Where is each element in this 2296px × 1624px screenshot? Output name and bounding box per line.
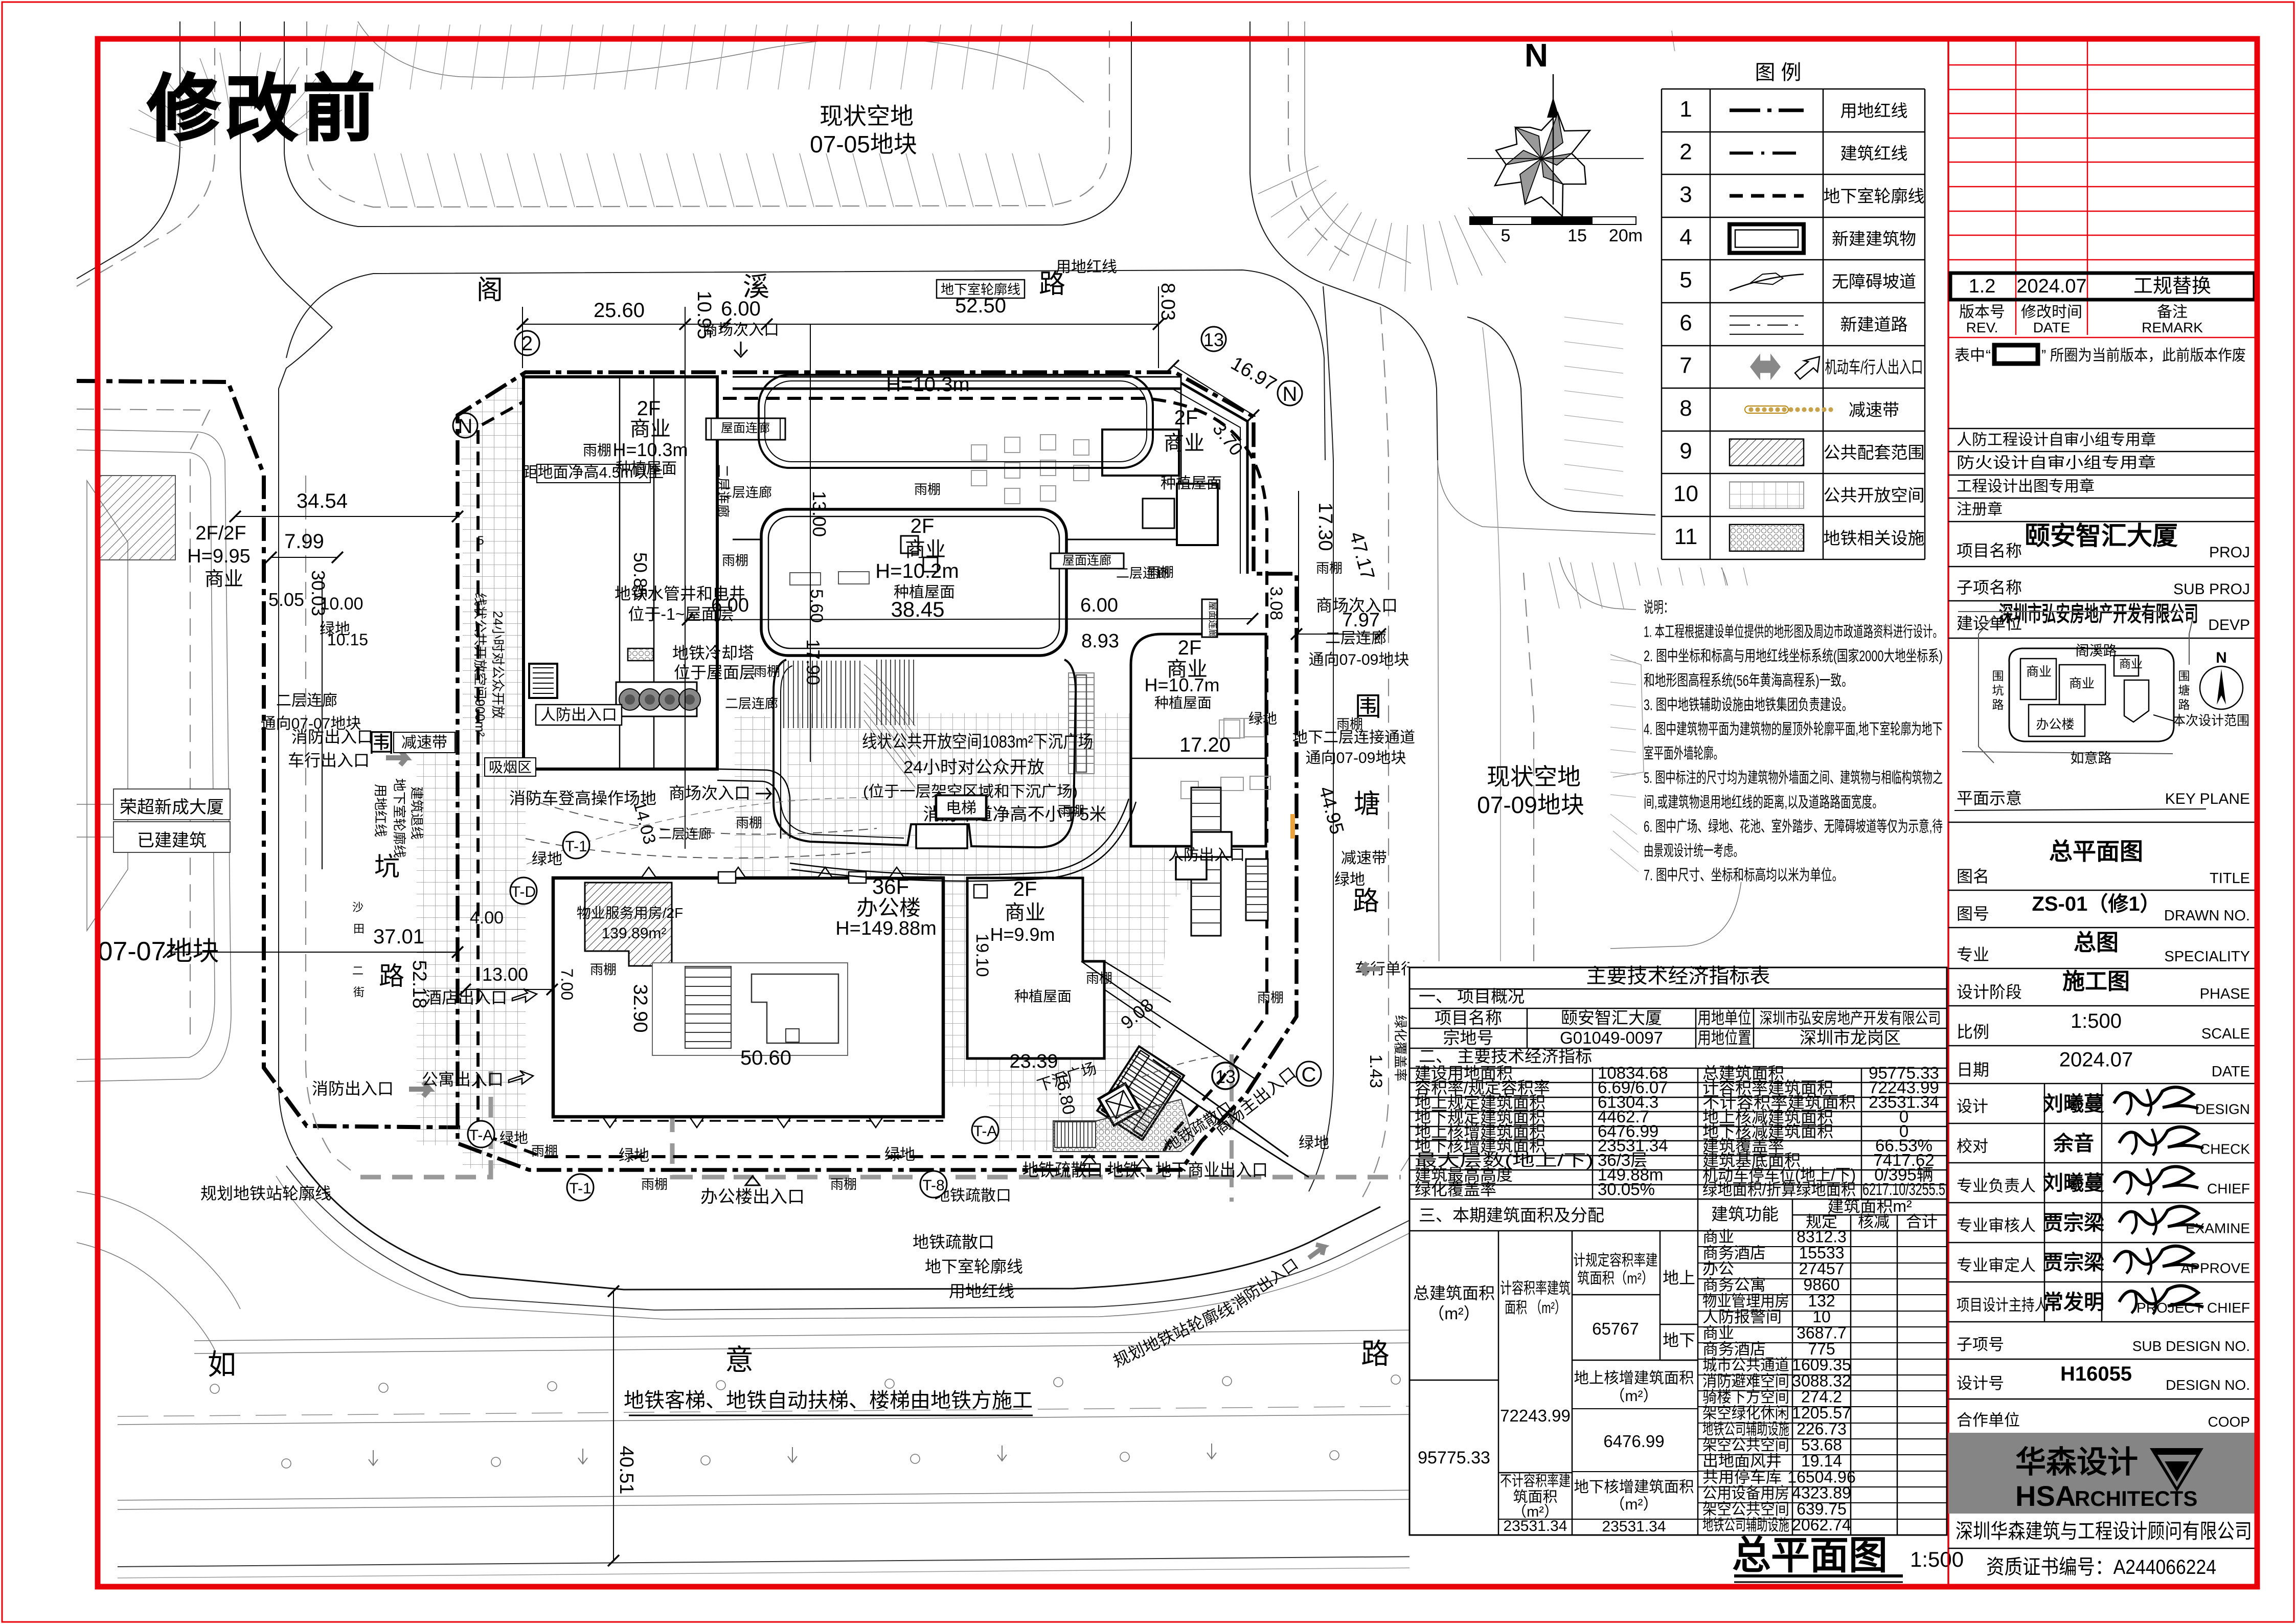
svg-text:T-1: T-1 [569, 1180, 591, 1197]
svg-text:围: 围 [2178, 669, 2190, 683]
svg-text:架空公共空间: 架空公共空间 [1702, 1500, 1789, 1518]
svg-text:32.90: 32.90 [629, 984, 651, 1032]
svg-text:华森设计: 华森设计 [2015, 1445, 2138, 1479]
svg-text:公用设备用房: 公用设备用房 [1702, 1484, 1789, 1502]
svg-text:2: 2 [521, 332, 533, 355]
svg-text:30.05%: 30.05% [1598, 1180, 1655, 1199]
svg-text:7. 图中尺寸、坐标和标高均以米为单位。: 7. 图中尺寸、坐标和标高均以米为单位。 [1644, 867, 1843, 884]
svg-text:用地红线: 用地红线 [373, 784, 388, 837]
svg-text:总建筑面积: 总建筑面积 [1413, 1284, 1495, 1302]
svg-text:二层连廊: 二层连廊 [658, 826, 712, 842]
svg-text:绿地: 绿地 [1334, 871, 1365, 888]
svg-text:图名: 图名 [1957, 867, 1989, 886]
svg-text:RCHITECTS: RCHITECTS [2075, 1486, 2197, 1510]
svg-text:计容积率建筑: 计容积率建筑 [1500, 1279, 1571, 1297]
svg-text:种植屋面: 种植屋面 [1014, 988, 1072, 1004]
svg-text:种植屋面: 种植屋面 [894, 584, 955, 601]
svg-text:说明：: 说明： [1644, 599, 1673, 616]
svg-text:2062.74: 2062.74 [1792, 1516, 1851, 1534]
svg-text:07-07地块: 07-07地块 [98, 937, 219, 966]
svg-text:DESIGN NO.: DESIGN NO. [2166, 1377, 2250, 1393]
svg-text:3: 3 [1679, 182, 1692, 207]
svg-text:（m²）: （m²） [1428, 1304, 1480, 1323]
svg-text:绿地: 绿地 [619, 1147, 649, 1164]
svg-text:地下: 地下 [1663, 1331, 1695, 1349]
svg-text:3. 图中地铁辅助设施由地铁集团负责建设。: 3. 图中地铁辅助设施由地铁集团负责建设。 [1644, 696, 1853, 713]
svg-text:位于-1~屋面层: 位于-1~屋面层 [628, 605, 734, 623]
svg-text:地铁相关设施: 地铁相关设施 [1824, 529, 1925, 548]
svg-text:5.60: 5.60 [807, 589, 826, 623]
svg-text:HSA: HSA [2015, 1480, 2076, 1512]
svg-text:通向07-07地块: 通向07-07地块 [261, 715, 361, 732]
svg-text:深圳市弘安房地产开发有限公司: 深圳市弘安房地产开发有限公司 [1999, 602, 2198, 626]
svg-text:专业负责人: 专业负责人 [1957, 1177, 2036, 1195]
svg-text:二、 主要技术经济指标: 二、 主要技术经济指标 [1419, 1047, 1592, 1066]
svg-text:SUB PROJ: SUB PROJ [2173, 581, 2250, 598]
svg-text:商场次入口: 商场次入口 [669, 784, 751, 802]
svg-text:屋面连廊: 屋面连廊 [1062, 554, 1111, 568]
svg-text:13: 13 [1215, 1066, 1236, 1087]
svg-text:商业: 商业 [2069, 676, 2095, 691]
svg-text:主要技术经济指标表: 主要技术经济指标表 [1586, 965, 1770, 987]
svg-text:总平面图: 总平面图 [1732, 1534, 1888, 1577]
svg-text:如: 如 [208, 1348, 236, 1381]
svg-text:办公: 办公 [1702, 1260, 1734, 1278]
svg-text:N: N [1283, 383, 1298, 405]
svg-text:地下核增建筑面积: 地下核增建筑面积 [1574, 1479, 1694, 1496]
svg-text:1:500: 1:500 [1910, 1547, 1964, 1571]
svg-text:REV.: REV. [1966, 320, 1998, 335]
svg-text:13: 13 [1203, 329, 1224, 350]
svg-text:商业: 商业 [630, 418, 671, 440]
svg-text:5. 图中标注的尺寸均为建筑物外墙面之间、建筑物与相临构筑物: 5. 图中标注的尺寸均为建筑物外墙面之间、建筑物与相临构筑物之 [1644, 770, 1943, 786]
svg-text:07-05地块: 07-05地块 [810, 131, 917, 157]
svg-text:H=10.3m: H=10.3m [886, 373, 969, 396]
svg-text:25.60: 25.60 [594, 299, 645, 322]
svg-text:二层连廊: 二层连廊 [715, 464, 731, 517]
svg-text:人防工程设计自审小组专用章: 人防工程设计自审小组专用章 [1957, 432, 2156, 448]
svg-text:9: 9 [1679, 439, 1692, 464]
svg-text:5: 5 [1679, 267, 1692, 292]
svg-text:新建道路: 新建道路 [1840, 315, 1908, 334]
svg-text:坑: 坑 [1992, 684, 2004, 697]
svg-text:7: 7 [1679, 353, 1692, 378]
svg-text:17.90: 17.90 [803, 639, 824, 685]
svg-text:办公楼: 办公楼 [856, 896, 921, 920]
svg-text:子项名称: 子项名称 [1957, 578, 2022, 597]
svg-text:CHECK: CHECK [2200, 1141, 2250, 1157]
svg-text:室平面外墙轮廓。: 室平面外墙轮廓。 [1644, 746, 1723, 762]
svg-text:11: 11 [1674, 524, 1698, 549]
svg-text:路: 路 [1353, 887, 1379, 916]
svg-text:雨棚: 雨棚 [590, 962, 617, 977]
svg-text:商业: 商业 [1702, 1324, 1734, 1342]
svg-text:建筑功能: 建筑功能 [1711, 1205, 1779, 1224]
svg-text:PROJ: PROJ [2209, 544, 2250, 561]
svg-text:用地红线: 用地红线 [949, 1282, 1014, 1300]
svg-text:雨棚: 雨棚 [1336, 716, 1363, 732]
svg-text:二: 二 [352, 964, 363, 977]
svg-text:SCALE: SCALE [2201, 1026, 2250, 1042]
svg-text:H=10.3m: H=10.3m [612, 439, 688, 460]
svg-text:意: 意 [725, 1344, 754, 1376]
svg-text:和地形图高程系统(56年黄海高程系)一致。: 和地形图高程系统(56年黄海高程系)一致。 [1644, 672, 1853, 689]
svg-text:8: 8 [1679, 396, 1692, 421]
svg-text:通向07-09地块: 通向07-09地块 [1306, 750, 1406, 766]
svg-text:专业: 专业 [1957, 945, 1989, 964]
svg-text:23531.34: 23531.34 [1503, 1518, 1567, 1535]
svg-text:距地面净高4.5m以上: 距地面净高4.5m以上 [522, 464, 664, 481]
svg-text:现状空地: 现状空地 [820, 103, 914, 129]
svg-text:N: N [1525, 37, 1548, 74]
svg-text:平面示意: 平面示意 [1957, 789, 2022, 807]
svg-text:溪: 溪 [743, 273, 769, 302]
svg-text:修改前: 修改前 [147, 69, 380, 150]
svg-text:1.43: 1.43 [1366, 1054, 1385, 1088]
svg-text:13.00: 13.00 [809, 491, 830, 537]
svg-text:公寓出入口: 公寓出入口 [422, 1070, 504, 1089]
svg-text:消防避难空间: 消防避难空间 [1702, 1372, 1789, 1390]
svg-text:合计: 合计 [1906, 1213, 1938, 1231]
svg-text:贾宗梁: 贾宗梁 [2043, 1211, 2104, 1234]
svg-text:雨棚: 雨棚 [1257, 990, 1284, 1005]
svg-text:72243.99: 72243.99 [1500, 1406, 1571, 1425]
svg-text:现状空地: 现状空地 [1487, 763, 1581, 790]
svg-text:物业管理用房: 物业管理用房 [1702, 1292, 1789, 1310]
svg-text:地铁疏散口 地铁、地下商业出入口: 地铁疏散口 地铁、地下商业出入口 [1022, 1161, 1268, 1180]
svg-text:路: 路 [379, 962, 404, 990]
svg-text:10.00: 10.00 [320, 594, 363, 614]
svg-text:DRAWN NO.: DRAWN NO. [2164, 908, 2250, 924]
svg-text:地下室轮廓线: 地下室轮廓线 [941, 282, 1020, 297]
svg-text:DESIGN: DESIGN [2195, 1101, 2250, 1117]
svg-text:地铁公司辅助设施: 地铁公司辅助设施 [1702, 1420, 1789, 1438]
svg-text:H=149.88m: H=149.88m [835, 918, 937, 939]
svg-text:地铁客梯、地铁自动扶梯、楼梯由地铁方施工: 地铁客梯、地铁自动扶梯、楼梯由地铁方施工 [624, 1389, 1033, 1412]
svg-text:电梯: 电梯 [946, 800, 976, 817]
svg-text:34.54: 34.54 [297, 490, 348, 512]
svg-text:CHIEF: CHIEF [2207, 1181, 2250, 1197]
svg-text:13.00: 13.00 [482, 964, 528, 985]
svg-text:用地红线: 用地红线 [1840, 101, 1908, 120]
svg-text:刘曦蔓: 刘曦蔓 [2043, 1093, 2104, 1115]
svg-text:商业: 商业 [2026, 665, 2052, 679]
svg-text:图 例: 图 例 [1755, 61, 1801, 84]
svg-text:围: 围 [1992, 669, 2004, 683]
svg-text:办公楼: 办公楼 [2036, 717, 2074, 732]
svg-text:新建建筑物: 新建建筑物 [1832, 230, 1916, 249]
svg-text:KEY PLANE: KEY PLANE [2165, 791, 2250, 807]
svg-text:50.60: 50.60 [740, 1047, 791, 1069]
svg-text:阁: 阁 [476, 276, 503, 305]
svg-text:雨棚: 雨棚 [531, 1143, 558, 1159]
svg-text:商业: 商业 [2119, 657, 2143, 670]
svg-text:地下室轮廓线: 地下室轮廓线 [925, 1257, 1023, 1276]
svg-text:种植屋面: 种植屋面 [1161, 475, 1222, 492]
svg-text:比例: 比例 [1957, 1023, 1989, 1041]
svg-text:2: 2 [1679, 139, 1692, 164]
svg-text:减速带: 减速带 [1849, 400, 1899, 419]
svg-text:图号: 图号 [1957, 905, 1989, 923]
svg-text:通向07-09地块: 通向07-09地块 [1309, 651, 1410, 668]
svg-text:路: 路 [2178, 698, 2190, 711]
svg-text:雨棚: 雨棚 [914, 482, 941, 497]
svg-text:田: 田 [353, 922, 365, 935]
svg-text:位于屋面层: 位于屋面层 [674, 663, 756, 682]
svg-text:雨棚: 雨棚 [830, 1177, 857, 1192]
svg-text:阁溪路: 阁溪路 [2076, 643, 2117, 659]
svg-text:REMARK: REMARK [2142, 320, 2203, 335]
svg-text:酒店出入口: 酒店出入口 [425, 988, 507, 1007]
svg-text:雨棚: 雨棚 [754, 664, 780, 679]
svg-text:项目名称: 项目名称 [1957, 542, 2022, 560]
svg-text:地铁冷却塔: 地铁冷却塔 [672, 644, 754, 662]
svg-text:T-A: T-A [469, 1127, 493, 1144]
svg-text:T-D: T-D [511, 884, 536, 900]
svg-text:2F: 2F [911, 515, 935, 537]
svg-text:H=10.2m: H=10.2m [875, 560, 959, 582]
svg-text:ZS-01（修1）: ZS-01（修1） [2032, 893, 2160, 915]
svg-text:雨棚: 雨棚 [722, 553, 748, 568]
svg-text:6: 6 [1679, 310, 1692, 335]
svg-text:宗地号: 宗地号 [1443, 1028, 1494, 1047]
svg-text:用地红线: 用地红线 [1056, 259, 1117, 276]
svg-text:施工图: 施工图 [2062, 969, 2130, 994]
svg-text:7.00: 7.00 [558, 968, 576, 1000]
svg-text:子项号: 子项号 [1957, 1336, 2004, 1354]
svg-text:N: N [2216, 649, 2227, 666]
svg-text:建筑红线: 建筑红线 [1840, 144, 1908, 163]
svg-text:商务酒店: 商务酒店 [1702, 1340, 1766, 1358]
svg-text:G01049-0097: G01049-0097 [1560, 1028, 1663, 1047]
svg-text:3.08: 3.08 [1266, 587, 1286, 620]
svg-text:二层连廊: 二层连廊 [276, 692, 337, 709]
svg-text:雨棚: 雨棚 [583, 442, 611, 458]
svg-text:深圳市龙岗区: 深圳市龙岗区 [1800, 1028, 1901, 1047]
svg-text:绿地: 绿地 [884, 1146, 915, 1163]
svg-text:17.30: 17.30 [1314, 502, 1336, 551]
svg-text:H=9.9m: H=9.9m [990, 924, 1055, 945]
svg-text:（m²）: （m²） [1610, 1496, 1658, 1513]
svg-text:减速带: 减速带 [401, 734, 447, 751]
svg-text:三、本期建筑面积及分配: 三、本期建筑面积及分配 [1419, 1206, 1604, 1225]
svg-text:地上: 地上 [1663, 1269, 1695, 1287]
svg-text:架空公共空间: 架空公共空间 [1702, 1436, 1789, 1454]
svg-text:路: 路 [1361, 1338, 1390, 1370]
svg-text:6476.99: 6476.99 [1603, 1432, 1664, 1451]
svg-text:出地面风井: 出地面风井 [1702, 1452, 1782, 1470]
svg-text:1.2: 1.2 [1969, 276, 1996, 297]
svg-text:项目设计主持人: 项目设计主持人 [1957, 1296, 2048, 1314]
svg-text:核减: 核减 [1858, 1213, 1890, 1231]
svg-text:专业审核人: 专业审核人 [1957, 1217, 2036, 1235]
svg-text:雨棚: 雨棚 [1147, 565, 1174, 580]
svg-text:间,或建筑物退用地红线的距离,以及道路路面宽度。: 间,或建筑物退用地红线的距离,以及道路路面宽度。 [1644, 794, 1883, 811]
svg-text:雨棚: 雨棚 [641, 1177, 668, 1192]
svg-text:T-8: T-8 [922, 1177, 944, 1194]
svg-text:深圳市弘安房地产开发有限公司: 深圳市弘安房地产开发有限公司 [1760, 1009, 1941, 1027]
svg-text:线状公共开放空间1083m²下沉广场: 线状公共开放空间1083m²下沉广场 [862, 732, 1093, 752]
svg-text:地下室轮廓线: 地下室轮廓线 [392, 778, 407, 858]
svg-text:校对: 校对 [1957, 1137, 1988, 1155]
svg-text:不计容积率建: 不计容积率建 [1500, 1473, 1571, 1490]
svg-text:设计: 设计 [1957, 1098, 1988, 1116]
svg-text:2F: 2F [1178, 637, 1202, 659]
svg-text:雨棚: 雨棚 [1058, 803, 1084, 819]
svg-text:23.39: 23.39 [1009, 1051, 1058, 1072]
svg-text:17.20: 17.20 [1179, 734, 1231, 756]
svg-text:绿地: 绿地 [320, 621, 350, 638]
svg-text:地上核增建筑面积: 地上核增建筑面积 [1574, 1370, 1694, 1387]
svg-text:专业审定人: 专业审定人 [1957, 1256, 2036, 1274]
svg-text:工程设计出图专用章: 工程设计出图专用章 [1957, 478, 2095, 495]
svg-text:吸烟区: 吸烟区 [489, 759, 532, 775]
svg-text:刘曦蔓: 刘曦蔓 [2043, 1172, 2104, 1194]
svg-text:6.00: 6.00 [1080, 595, 1118, 616]
svg-text:城市公共通道: 城市公共通道 [1702, 1356, 1789, 1374]
svg-text:8.03: 8.03 [1157, 283, 1178, 321]
svg-text:2F: 2F [1013, 878, 1037, 900]
svg-text:T-1: T-1 [565, 838, 587, 855]
svg-text:2024.07: 2024.07 [2059, 1049, 2133, 1071]
svg-text:塘: 塘 [2178, 684, 2190, 697]
svg-text:37.01: 37.01 [373, 926, 424, 948]
svg-text:139.89m²: 139.89m² [602, 925, 667, 942]
svg-text:商业: 商业 [1702, 1228, 1734, 1246]
svg-text:商业: 商业 [1005, 901, 1045, 924]
svg-text:二层连廊: 二层连廊 [1325, 630, 1386, 647]
svg-text:颐安智汇大厦: 颐安智汇大厦 [2025, 522, 2178, 550]
svg-text:商务酒店: 商务酒店 [1702, 1244, 1766, 1262]
svg-text:TITLE: TITLE [2210, 870, 2250, 887]
svg-text:物业服务用房/2F: 物业服务用房/2F [577, 905, 683, 921]
svg-text:C: C [1302, 1064, 1316, 1086]
svg-text:计规定容积率建: 计规定容积率建 [1574, 1252, 1658, 1269]
svg-text:绿地: 绿地 [1299, 1135, 1329, 1152]
svg-text:本次设计范围: 本次设计范围 [2173, 713, 2249, 728]
svg-text:合作单位: 合作单位 [1957, 1411, 2020, 1429]
svg-text:PHASE: PHASE [2200, 986, 2250, 1002]
svg-text:绿地: 绿地 [499, 1130, 528, 1146]
svg-text:地下室轮廓线: 地下室轮廓线 [1824, 187, 1925, 206]
svg-text:雨棚: 雨棚 [736, 815, 762, 830]
svg-text:6. 图中广场、绿地、花池、室外踏步、无障碍坡道等仅为示意,: 6. 图中广场、绿地、花池、室外踏步、无障碍坡道等仅为示意,待 [1644, 818, 1943, 835]
svg-text:DEVP: DEVP [2208, 617, 2250, 634]
svg-text:贾宗梁: 贾宗梁 [2043, 1251, 2104, 1274]
svg-text:用地单位: 用地单位 [1698, 1008, 1752, 1027]
svg-text:街: 街 [353, 986, 365, 999]
svg-text:EXAMINE: EXAMINE [2186, 1221, 2250, 1236]
svg-text:7.99: 7.99 [284, 530, 324, 553]
svg-text:07-09地块: 07-09地块 [1477, 792, 1584, 818]
svg-text:备注: 备注 [2157, 304, 2188, 321]
svg-text:APPROVE: APPROVE [2181, 1260, 2250, 1276]
svg-text:1. 本工程根据建设单位提供的地形图及周边市政道路资料进行设: 1. 本工程根据建设单位提供的地形图及周边市政道路资料进行设计。 [1644, 624, 1943, 641]
svg-text:绿地: 绿地 [532, 851, 562, 868]
svg-text:无障碍坡道: 无障碍坡道 [1832, 272, 1916, 291]
svg-text:SUB DESIGN NO.: SUB DESIGN NO. [2132, 1338, 2250, 1354]
svg-text:面积 （m²）: 面积 （m²） [1505, 1299, 1566, 1317]
svg-text:筑面积（m²）: 筑面积（m²） [1577, 1270, 1654, 1287]
svg-text:商务公寓: 商务公寓 [1702, 1276, 1766, 1294]
svg-text:地铁公司辅助设施: 地铁公司辅助设施 [1702, 1516, 1789, 1534]
svg-text:4. 图中建筑物平面为建筑物的屋顶外轮廓平面,地下室轮廓为地: 4. 图中建筑物平面为建筑物的屋顶外轮廓平面,地下室轮廓为地下 [1644, 721, 1943, 738]
svg-text:40.51: 40.51 [616, 1446, 637, 1494]
svg-text:20m: 20m [1609, 226, 1643, 245]
svg-text:公共开放空间: 公共开放空间 [1824, 486, 1925, 505]
svg-text:DATE: DATE [2033, 320, 2071, 335]
svg-text:地铁水管井和电井: 地铁水管井和电井 [615, 584, 745, 603]
svg-text:DATE: DATE [2212, 1064, 2250, 1080]
svg-text:颐安智汇大厦: 颐安智汇大厦 [1561, 1008, 1662, 1027]
svg-text:4.00: 4.00 [470, 908, 504, 928]
svg-text:4: 4 [1679, 225, 1692, 250]
svg-text:5.05: 5.05 [268, 589, 304, 610]
svg-text:用地位置: 用地位置 [1698, 1028, 1752, 1047]
svg-text:24小时对公众开放: 24小时对公众开放 [490, 611, 506, 719]
svg-text:COOP: COOP [2208, 1414, 2250, 1430]
svg-text:建筑退线: 建筑退线 [409, 786, 424, 840]
svg-text:规划地铁站轮廓线: 规划地铁站轮廓线 [200, 1184, 331, 1203]
svg-text:6217.10/3255.5: 6217.10/3255.5 [1862, 1180, 1945, 1199]
svg-text:8.93: 8.93 [1081, 630, 1119, 652]
svg-text:（m²）: （m²） [1610, 1388, 1658, 1405]
svg-text:雨棚: 雨棚 [1316, 560, 1343, 576]
svg-text:版本号: 版本号 [1959, 304, 2005, 321]
svg-text:骑楼下方空间: 骑楼下方空间 [1702, 1388, 1789, 1406]
svg-text:共用停车库: 共用停车库 [1702, 1468, 1782, 1486]
svg-text:表中: 表中 [1954, 347, 1985, 364]
svg-text:屋面连廊: 屋面连廊 [1208, 601, 1218, 638]
svg-text:筑面积: 筑面积 [1513, 1488, 1557, 1505]
svg-text:36F: 36F [872, 874, 909, 898]
svg-text:修改时间: 修改时间 [2021, 304, 2082, 321]
svg-text:线状公共开放空间900m²: 线状公共开放空间900m² [472, 593, 488, 737]
svg-text:雨棚: 雨棚 [1086, 971, 1112, 986]
svg-text:工规替换: 工规替换 [2133, 276, 2211, 297]
svg-text:2F: 2F [1174, 407, 1198, 429]
svg-text:种植屋面: 种植屋面 [1154, 695, 1212, 711]
svg-text:24小时对公众开放: 24小时对公众开放 [903, 758, 1044, 777]
svg-text:绿化覆盖率: 绿化覆盖率 [1415, 1180, 1496, 1199]
svg-text:二层连廊: 二层连廊 [725, 696, 778, 711]
svg-text:” 所圈为当前版本，此前版本作废: ” 所圈为当前版本，此前版本作废 [2041, 347, 2246, 364]
svg-text:人防出入口: 人防出入口 [1168, 847, 1245, 864]
svg-text:N: N [458, 415, 473, 438]
svg-text:人防出入口: 人防出入口 [540, 707, 617, 724]
svg-text:设计号: 设计号 [1957, 1374, 2004, 1392]
svg-text:荣超新成大厦: 荣超新成大厦 [120, 798, 224, 817]
svg-text:10: 10 [1673, 481, 1698, 506]
svg-text:商场次入口: 商场次入口 [702, 322, 779, 339]
svg-text:商业: 商业 [204, 569, 243, 590]
svg-text:1:500: 1:500 [2071, 1010, 2122, 1032]
svg-text:深圳华森建筑与工程设计顾问有限公司: 深圳华森建筑与工程设计顾问有限公司 [1956, 1520, 2252, 1543]
svg-text:5: 5 [1501, 226, 1511, 245]
svg-text:23531.34: 23531.34 [1602, 1518, 1666, 1535]
svg-text:注册章: 注册章 [1957, 501, 2003, 518]
svg-text:余音: 余音 [2053, 1132, 2094, 1155]
svg-text:5: 5 [477, 534, 484, 548]
svg-text:架空绿化休闲: 架空绿化休闲 [1702, 1404, 1789, 1422]
svg-text:已建建筑: 已建建筑 [137, 831, 207, 850]
svg-text:商业: 商业 [1164, 432, 1204, 455]
svg-text:商业: 商业 [905, 538, 946, 561]
svg-text:2F/2F: 2F/2F [195, 523, 246, 544]
svg-text:地铁疏散口: 地铁疏散口 [913, 1233, 994, 1251]
svg-text:减速带: 减速带 [1341, 850, 1387, 867]
svg-text:项目名称: 项目名称 [1435, 1008, 1502, 1027]
